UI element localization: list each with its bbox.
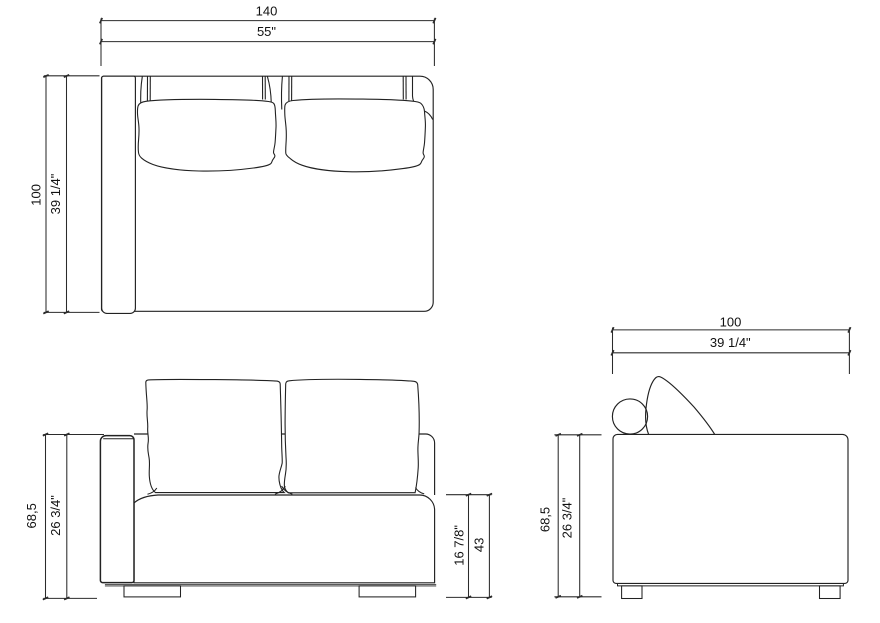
svg-text:16 7/8": 16 7/8": [452, 525, 467, 566]
svg-text:39 1/4": 39 1/4": [48, 173, 63, 214]
svg-text:26 3/4": 26 3/4": [559, 497, 574, 538]
svg-text:26 3/4": 26 3/4": [48, 495, 63, 536]
svg-text:68,5: 68,5: [24, 503, 39, 528]
svg-text:43: 43: [472, 538, 487, 552]
svg-text:140: 140: [256, 3, 278, 18]
svg-text:100: 100: [720, 315, 742, 330]
svg-text:39 1/4": 39 1/4": [710, 335, 751, 350]
svg-text:55": 55": [257, 24, 276, 39]
svg-text:68,5: 68,5: [537, 507, 552, 532]
svg-text:100: 100: [29, 184, 44, 206]
